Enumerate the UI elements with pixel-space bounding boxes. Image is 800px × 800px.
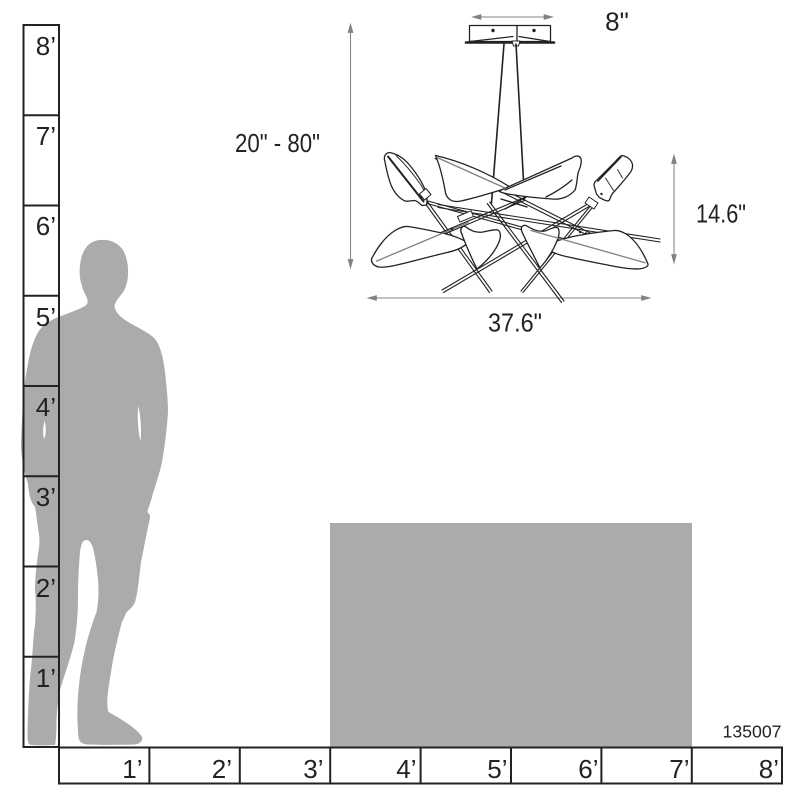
- svg-text:7’: 7’: [669, 754, 689, 784]
- svg-text:4’: 4’: [396, 754, 416, 784]
- svg-text:1’: 1’: [36, 663, 56, 693]
- svg-text:3’: 3’: [303, 754, 323, 784]
- svg-text:4’: 4’: [36, 392, 56, 422]
- svg-text:2’: 2’: [36, 573, 56, 603]
- svg-text:5’: 5’: [487, 754, 507, 784]
- svg-text:8’: 8’: [36, 31, 56, 61]
- svg-text:135007: 135007: [723, 722, 782, 742]
- svg-text:1’: 1’: [122, 754, 142, 784]
- svg-text:6’: 6’: [36, 211, 56, 241]
- svg-text:6’: 6’: [578, 754, 598, 784]
- svg-text:20" - 80": 20" - 80": [235, 128, 320, 158]
- svg-text:3’: 3’: [36, 482, 56, 512]
- svg-text:5’: 5’: [36, 302, 56, 332]
- svg-text:8": 8": [605, 7, 629, 37]
- svg-text:37.6": 37.6": [488, 308, 542, 338]
- svg-text:8’: 8’: [759, 754, 779, 784]
- svg-text:7’: 7’: [36, 121, 56, 151]
- svg-text:2’: 2’: [212, 754, 232, 784]
- svg-text:14.6": 14.6": [696, 199, 746, 229]
